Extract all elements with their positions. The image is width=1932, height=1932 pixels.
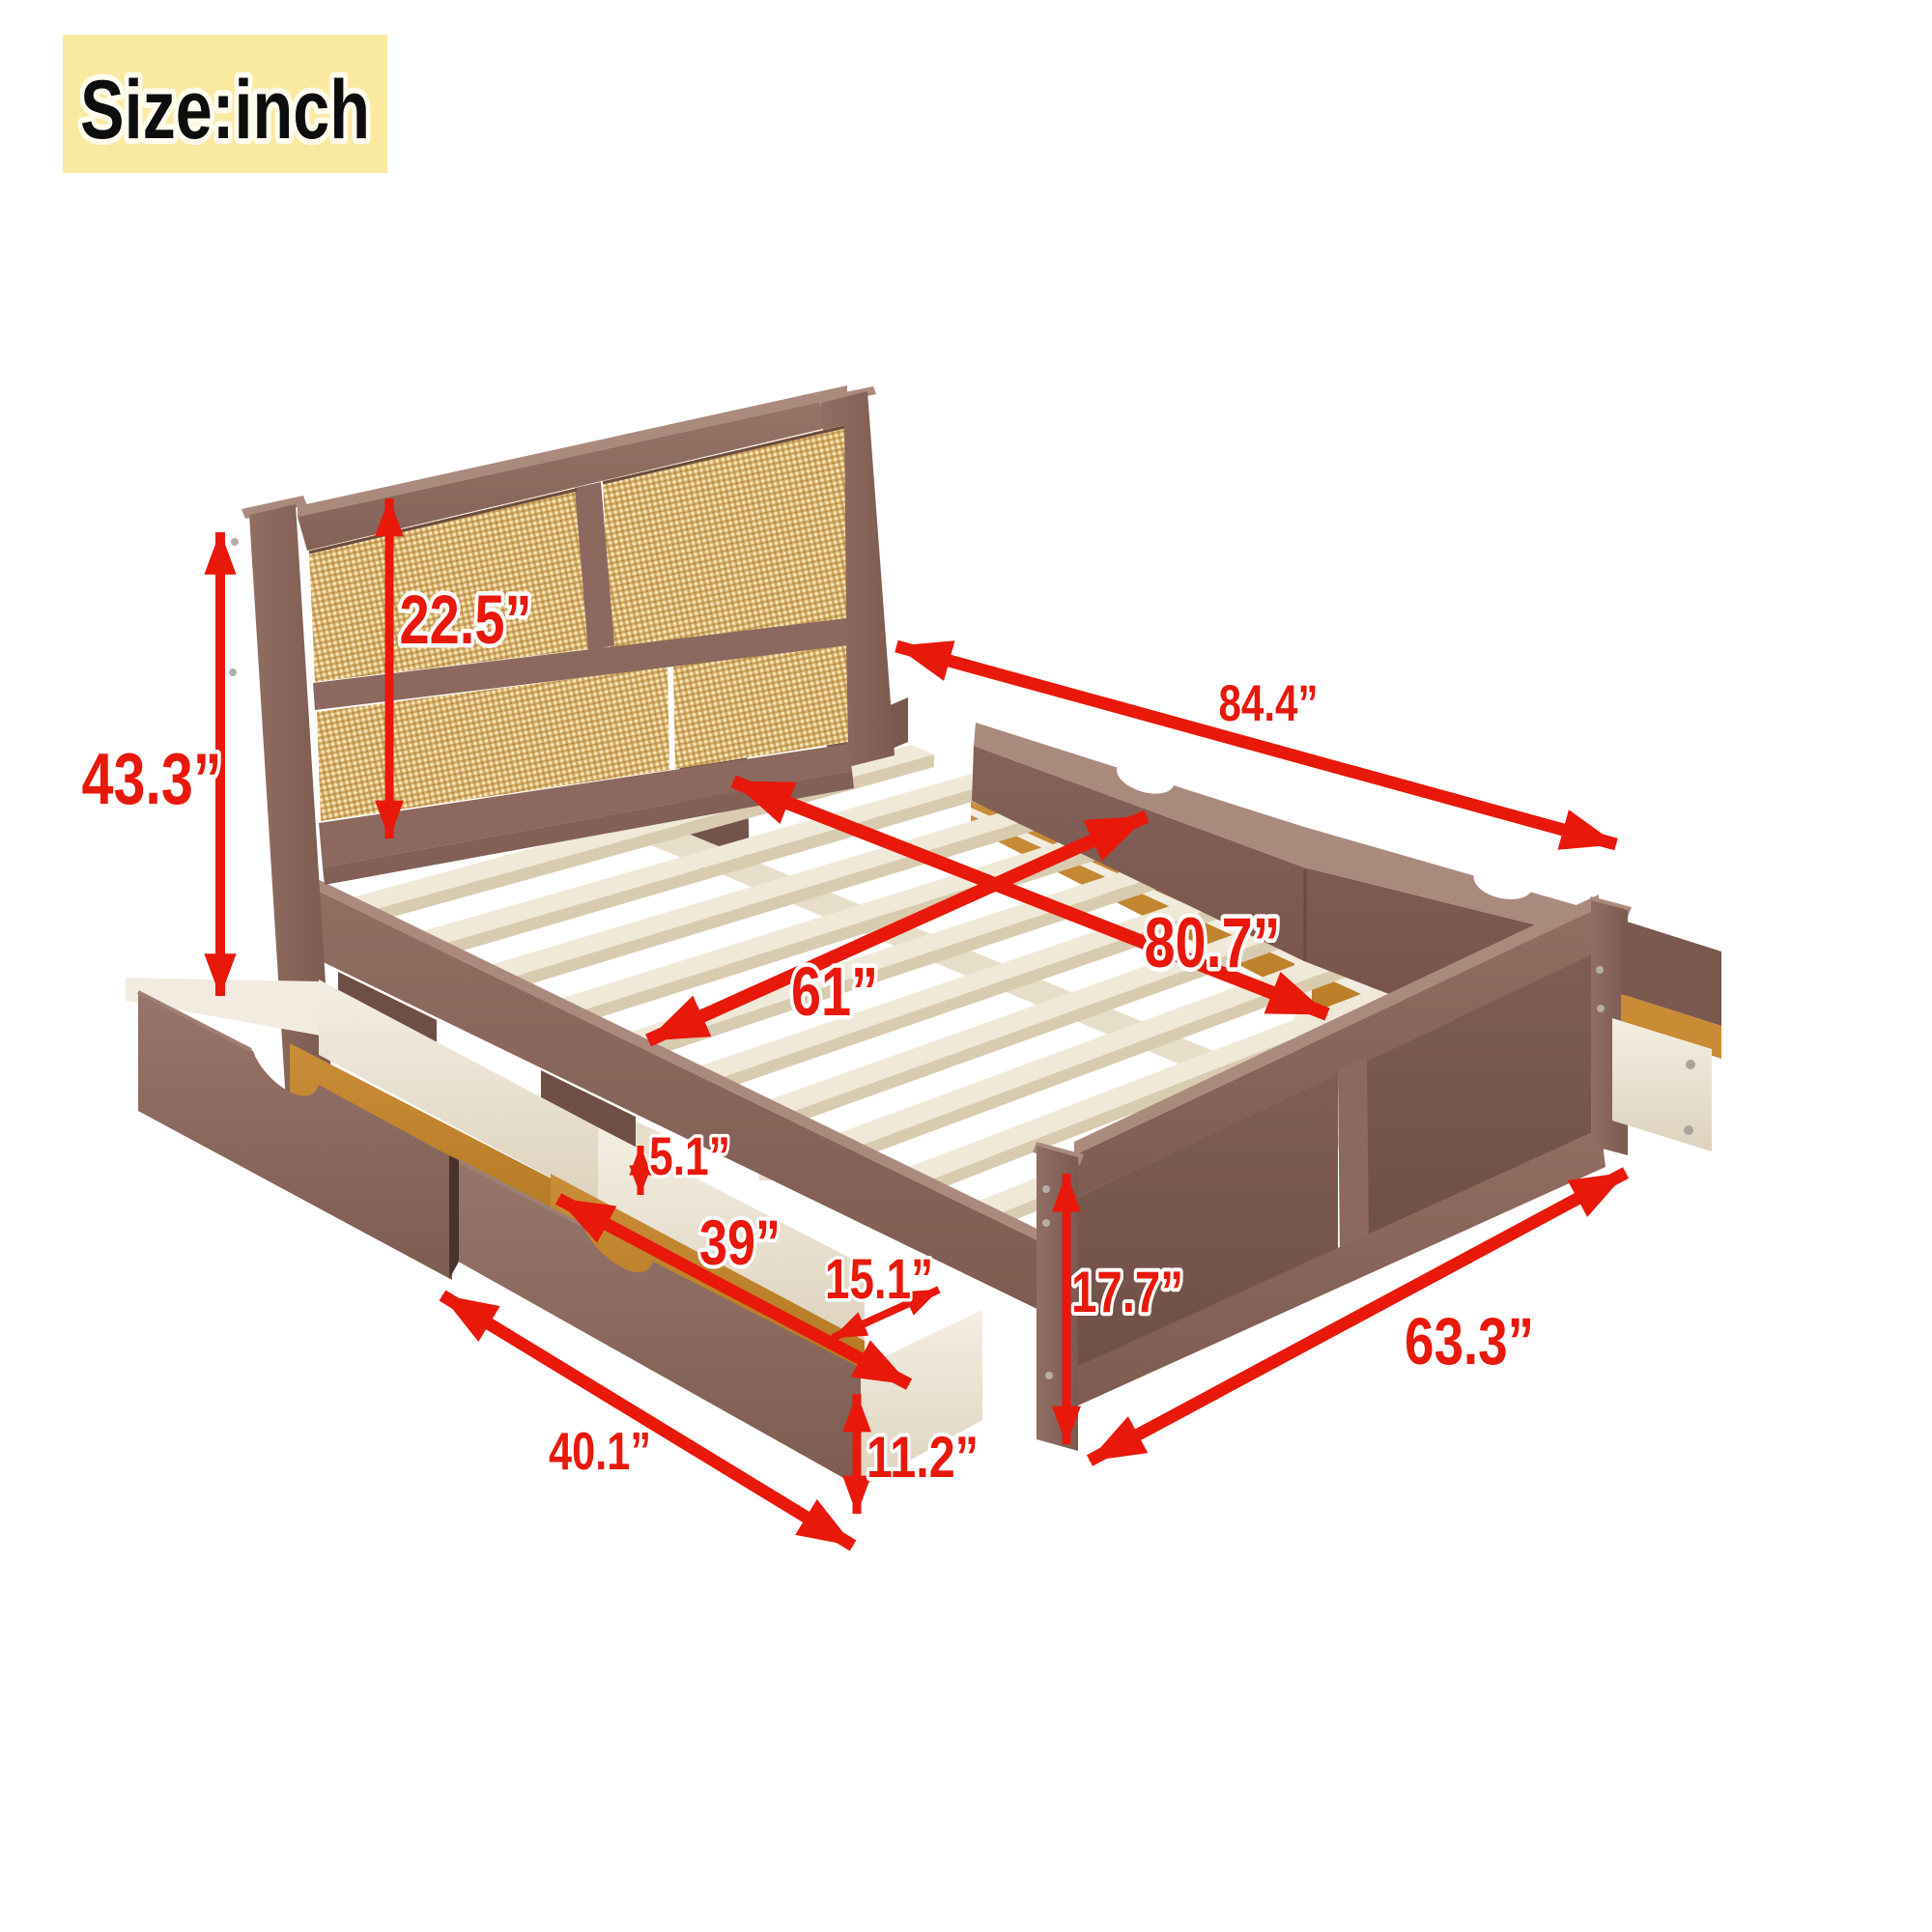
svg-text:15.1”: 15.1”	[825, 1248, 933, 1311]
svg-text:39”: 39”	[699, 1207, 781, 1278]
svg-text:22.5”: 22.5”	[400, 582, 532, 659]
svg-text:80.7”: 80.7”	[1145, 904, 1281, 982]
svg-text:5.1”: 5.1”	[649, 1125, 730, 1186]
svg-text:61”: 61”	[791, 954, 878, 1031]
svg-text:43.3”: 43.3”	[82, 738, 222, 819]
svg-text:84.4”: 84.4”	[1219, 675, 1319, 732]
svg-text:17.7”: 17.7”	[1071, 1260, 1183, 1324]
svg-text:Size:inch: Size:inch	[80, 64, 370, 156]
svg-text:40.1”: 40.1”	[549, 1421, 651, 1481]
svg-text:63.3”: 63.3”	[1405, 1304, 1534, 1378]
svg-text:11.2”: 11.2”	[867, 1425, 979, 1490]
